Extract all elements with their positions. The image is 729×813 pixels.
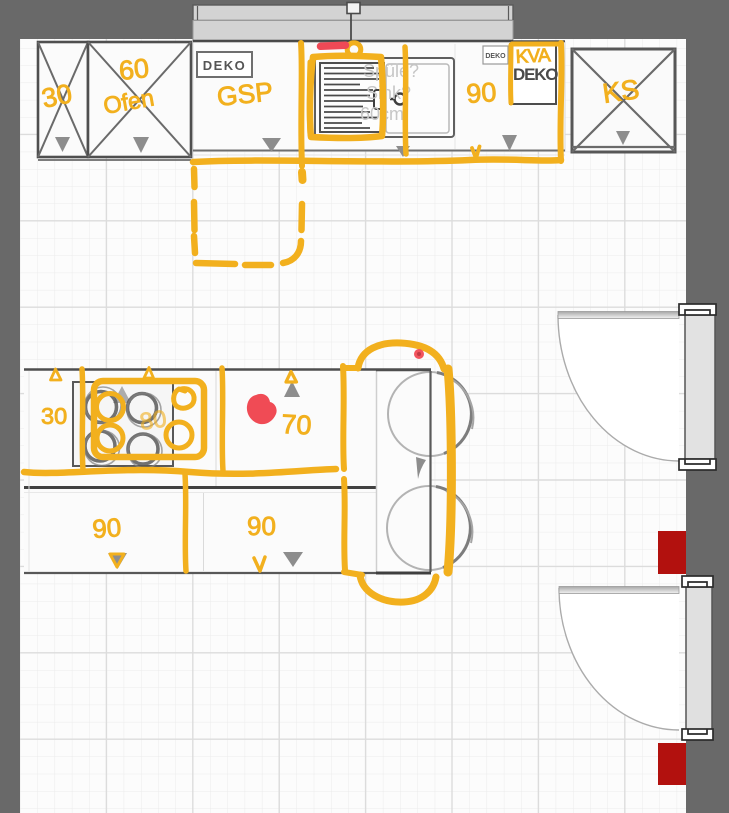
svg-text:DEKO: DEKO (203, 58, 247, 73)
svg-text:30: 30 (41, 403, 67, 429)
svg-text:70: 70 (281, 409, 313, 441)
svg-text:KS: KS (601, 73, 642, 109)
svg-text:30: 30 (39, 78, 75, 114)
svg-text:DEKO: DEKO (513, 65, 558, 84)
svg-text:90: 90 (465, 77, 497, 109)
svg-text:Spüle?: Spüle? (363, 61, 419, 81)
svg-text:60: 60 (117, 53, 150, 86)
svg-text:DEKO: DEKO (485, 53, 506, 60)
svg-text:GSP: GSP (215, 76, 274, 112)
svg-text:KVA: KVA (515, 45, 551, 68)
svg-text:90: 90 (91, 512, 122, 544)
svg-text:80: 80 (138, 405, 168, 435)
svg-text:90: 90 (247, 511, 276, 541)
